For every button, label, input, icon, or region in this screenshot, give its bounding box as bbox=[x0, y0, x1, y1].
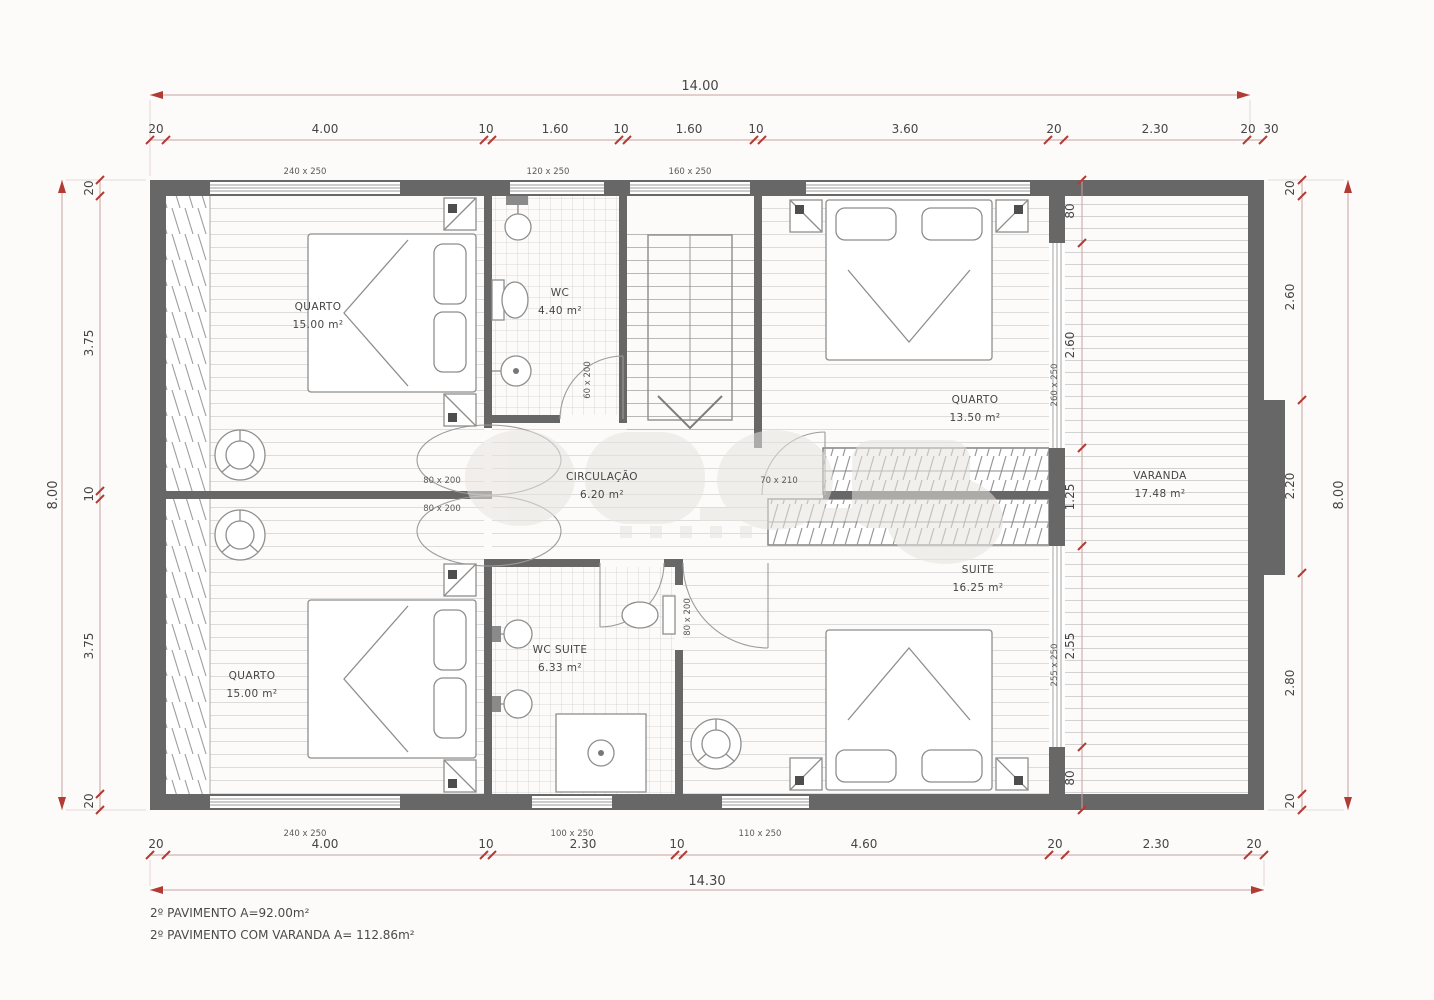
room-name: SUITE bbox=[962, 564, 995, 576]
dim-label: 10 bbox=[669, 837, 684, 851]
dim-label: 20 bbox=[1046, 122, 1061, 136]
dim-label: 3.75 bbox=[82, 633, 96, 660]
closet-strip-left-bottom bbox=[166, 499, 210, 794]
room-area: 13.50 m² bbox=[949, 412, 1000, 424]
shower-stall bbox=[556, 714, 646, 792]
window-top-quarto1 bbox=[210, 182, 400, 194]
window-top-quarto2 bbox=[806, 182, 1030, 194]
room-name: WC SUITE bbox=[533, 644, 588, 656]
dim-label: 2.80 bbox=[1283, 670, 1297, 697]
pillar-right bbox=[1248, 400, 1285, 575]
dim-label-top-total: 14.00 bbox=[681, 79, 718, 94]
armchair bbox=[215, 510, 265, 560]
nightstand bbox=[996, 200, 1028, 232]
floor-plan-svg: 14.00 14.30 8.00 8.00 20 4.00 10 1.60 10… bbox=[0, 0, 1434, 1000]
dim-label: 80 bbox=[1063, 203, 1077, 218]
room-name: CIRCULAÇÃO bbox=[566, 470, 638, 483]
window-bottom-wc-suite bbox=[532, 796, 612, 808]
dim-label: 2.30 bbox=[1143, 837, 1170, 851]
window-size-label: 100 x 250 bbox=[551, 829, 594, 839]
dim-label: 10 bbox=[613, 122, 628, 136]
window-size-label: 160 x 250 bbox=[669, 167, 712, 177]
window-top-wc bbox=[510, 182, 604, 194]
armchair bbox=[691, 719, 741, 769]
window-size-label: 110 x 250 bbox=[739, 829, 782, 839]
dim-label: 1.60 bbox=[542, 122, 569, 136]
window-bottom-suite bbox=[722, 796, 809, 808]
stairs bbox=[627, 230, 754, 430]
window-size-label: 255 x 250 bbox=[1050, 644, 1060, 687]
dim-label: 1.25 bbox=[1063, 484, 1077, 511]
nightstand bbox=[790, 758, 822, 790]
room-name: QUARTO bbox=[295, 301, 342, 313]
room-name: WC bbox=[551, 287, 570, 299]
dim-label-bottom-total: 14.30 bbox=[688, 874, 725, 889]
dim-label: 20 bbox=[82, 180, 96, 195]
dim-label: 4.00 bbox=[312, 122, 339, 136]
dim-label: 1.60 bbox=[676, 122, 703, 136]
nightstand bbox=[790, 200, 822, 232]
room-name: QUARTO bbox=[229, 670, 276, 682]
footer-notes: 2º PAVIMENTO A=92.00m² 2º PAVIMENTO COM … bbox=[150, 906, 415, 942]
toilet bbox=[492, 280, 528, 320]
room-area: 17.48 m² bbox=[1134, 488, 1185, 500]
dim-label: 2.30 bbox=[570, 837, 597, 851]
door-size-label: 60 x 200 bbox=[583, 361, 593, 398]
window-top-stairs bbox=[630, 182, 750, 194]
nightstand bbox=[996, 758, 1028, 790]
bed-quarto3 bbox=[308, 600, 476, 758]
dim-label: 20 bbox=[1246, 837, 1261, 851]
window-size-label: 260 x 250 bbox=[1050, 364, 1060, 407]
room-area: 15.00 m² bbox=[292, 319, 343, 331]
armchair bbox=[215, 430, 265, 480]
nightstand bbox=[444, 394, 476, 426]
dim-label: 2.20 bbox=[1283, 473, 1297, 500]
dim-label: 10 bbox=[82, 486, 96, 501]
floor-plan-page: 14.00 14.30 8.00 8.00 20 4.00 10 1.60 10… bbox=[0, 0, 1434, 1000]
nightstand bbox=[444, 760, 476, 792]
footer-note-area-varanda: 2º PAVIMENTO COM VARANDA A= 112.86m² bbox=[150, 928, 415, 942]
dim-label: 2.55 bbox=[1063, 633, 1077, 660]
room-name: QUARTO bbox=[952, 394, 999, 406]
dim-label: 30 bbox=[1263, 122, 1278, 136]
footer-note-area: 2º PAVIMENTO A=92.00m² bbox=[150, 906, 310, 920]
window-size-label: 240 x 250 bbox=[284, 829, 327, 839]
dim-label: 4.60 bbox=[851, 837, 878, 851]
dim-label: 10 bbox=[748, 122, 763, 136]
dim-label: 10 bbox=[478, 837, 493, 851]
dim-label: 20 bbox=[148, 122, 163, 136]
dim-label: 2.60 bbox=[1063, 332, 1077, 359]
dim-label: 3.75 bbox=[82, 330, 96, 357]
nightstand bbox=[444, 564, 476, 596]
dim-label: 4.00 bbox=[312, 837, 339, 851]
dim-label: 20 bbox=[148, 837, 163, 851]
dim-label-left-total: 8.00 bbox=[46, 481, 61, 510]
dim-label: 20 bbox=[82, 793, 96, 808]
dim-label-right-total: 8.00 bbox=[1332, 481, 1347, 510]
dim-label: 20 bbox=[1283, 793, 1297, 808]
closet-strip-left-top bbox=[166, 196, 210, 491]
dim-label: 20 bbox=[1047, 837, 1062, 851]
window-size-label: 120 x 250 bbox=[527, 167, 570, 177]
room-area: 6.33 m² bbox=[538, 662, 582, 674]
dim-label: 20 bbox=[1283, 180, 1297, 195]
dim-label: 2.60 bbox=[1283, 284, 1297, 311]
dim-label: 10 bbox=[478, 122, 493, 136]
room-area: 16.25 m² bbox=[952, 582, 1003, 594]
nightstand bbox=[444, 198, 476, 230]
wall-left bbox=[150, 180, 166, 810]
dim-label: 2.30 bbox=[1142, 122, 1169, 136]
door-size-label: 80 x 200 bbox=[423, 504, 460, 514]
dim-label: 80 bbox=[1063, 770, 1077, 785]
room-name: VARANDA bbox=[1133, 470, 1187, 482]
dim-label: 3.60 bbox=[892, 122, 919, 136]
door-size-label: 80 x 200 bbox=[683, 598, 693, 635]
door-size-label: 70 x 210 bbox=[760, 476, 797, 486]
room-area: 15.00 m² bbox=[226, 688, 277, 700]
door-size-label: 80 x 200 bbox=[423, 476, 460, 486]
room-area: 6.20 m² bbox=[580, 489, 624, 501]
dim-label: 20 bbox=[1240, 122, 1255, 136]
sink bbox=[505, 196, 531, 240]
window-size-label: 240 x 250 bbox=[284, 167, 327, 177]
room-area: 4.40 m² bbox=[538, 305, 582, 317]
bed-quarto1 bbox=[308, 234, 476, 392]
bed-suite bbox=[826, 630, 992, 790]
bed-quarto2 bbox=[826, 200, 992, 360]
window-bottom-quarto3 bbox=[210, 796, 400, 808]
